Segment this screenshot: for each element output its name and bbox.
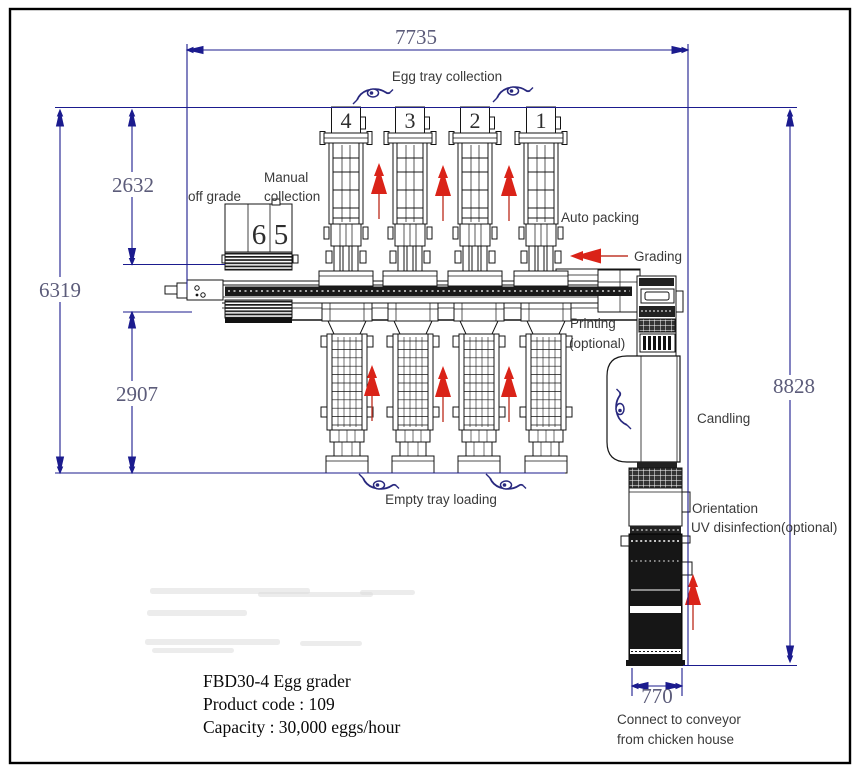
machine-drawing: 432165 <box>165 107 692 666</box>
label-auto-packing: Auto packing <box>561 210 639 225</box>
dimension-arrow <box>187 47 203 54</box>
label-manual-collection: collection <box>264 189 320 204</box>
dimension-arrow <box>129 312 136 328</box>
label-printing-optional: (optional) <box>569 336 625 351</box>
off-grade-unit: 65 <box>222 199 298 323</box>
dimension-arrow <box>57 110 64 126</box>
flow-arrow-up <box>435 165 451 221</box>
label-connect-conveyor: Connect to conveyor <box>617 712 741 727</box>
printing-module <box>637 276 683 356</box>
info-capacity: Capacity : 30,000 eggs/hour <box>203 717 401 737</box>
flow-arrow-up <box>501 165 517 221</box>
info-product-code: Product code : 109 <box>203 694 335 714</box>
flow-arrow-up <box>371 163 387 219</box>
label-grading: Grading <box>634 249 682 264</box>
label-off-grade: off grade <box>188 189 241 204</box>
top-lane-number: 4 <box>341 108 352 133</box>
empty-tray-lane <box>453 303 505 473</box>
infeed-conveyor <box>621 534 692 666</box>
dimension-arrow <box>787 110 794 126</box>
dimension-arrow <box>787 646 794 662</box>
empty-tray-lane <box>387 303 439 473</box>
top-lane-tower: 2 <box>448 107 502 286</box>
conveyor-left-end <box>165 280 223 300</box>
dim-lower-left-height: 2907 <box>116 382 158 406</box>
label-printing: Printing <box>570 316 616 331</box>
info-model: FBD30-4 Egg grader <box>203 671 351 691</box>
empty-tray-lane <box>321 303 373 473</box>
flow-arrow-up <box>685 574 701 630</box>
eye-icon <box>486 474 526 489</box>
dimension-arrow <box>129 110 136 126</box>
label-uv-disinfection: UV disinfection(optional) <box>691 520 837 535</box>
drawing-canvas: 43216577352632631929078828770Egg tray co… <box>0 0 863 776</box>
dimension-arrow <box>57 457 64 473</box>
label-egg-tray-collection: Egg tray collection <box>392 69 502 84</box>
label-empty-tray-loading: Empty tray loading <box>385 492 497 507</box>
egg-grader-diagram: 43216577352632631929078828770Egg tray co… <box>0 0 863 776</box>
label-manual-collection: Manual <box>264 170 308 185</box>
dim-upper-left-height: 2632 <box>112 173 154 197</box>
top-lane-tower: 4 <box>319 107 373 286</box>
dim-left-total-height: 6319 <box>39 278 81 302</box>
eye-icon <box>359 474 399 489</box>
top-lane-tower: 1 <box>514 107 568 286</box>
top-lane-number: 2 <box>470 108 481 133</box>
dim-right-total-height: 8828 <box>773 374 815 398</box>
dimension-arrow <box>672 47 688 54</box>
dimension-arrow <box>129 457 136 473</box>
eye-icon <box>353 89 393 104</box>
label-connect-conveyor: from chicken house <box>617 732 734 747</box>
erased-text-smudges <box>145 588 415 653</box>
off-grade-lane-number: 6 <box>252 219 267 251</box>
top-lane-number: 1 <box>536 108 547 133</box>
label-orientation: Orientation <box>692 501 758 516</box>
top-lane-number: 3 <box>405 108 416 133</box>
label-candling: Candling <box>697 411 750 426</box>
orientation-uv-unit <box>629 462 690 534</box>
eye-icon <box>493 87 533 102</box>
dimension-arrow <box>129 249 136 265</box>
dim-conveyor-width: 770 <box>641 684 673 708</box>
empty-tray-lane <box>520 303 572 473</box>
top-lane-tower: 3 <box>383 107 437 286</box>
off-grade-lane-number: 5 <box>274 219 289 251</box>
dim-overall-width: 7735 <box>395 25 437 49</box>
grading-flow-arrow <box>570 249 628 264</box>
